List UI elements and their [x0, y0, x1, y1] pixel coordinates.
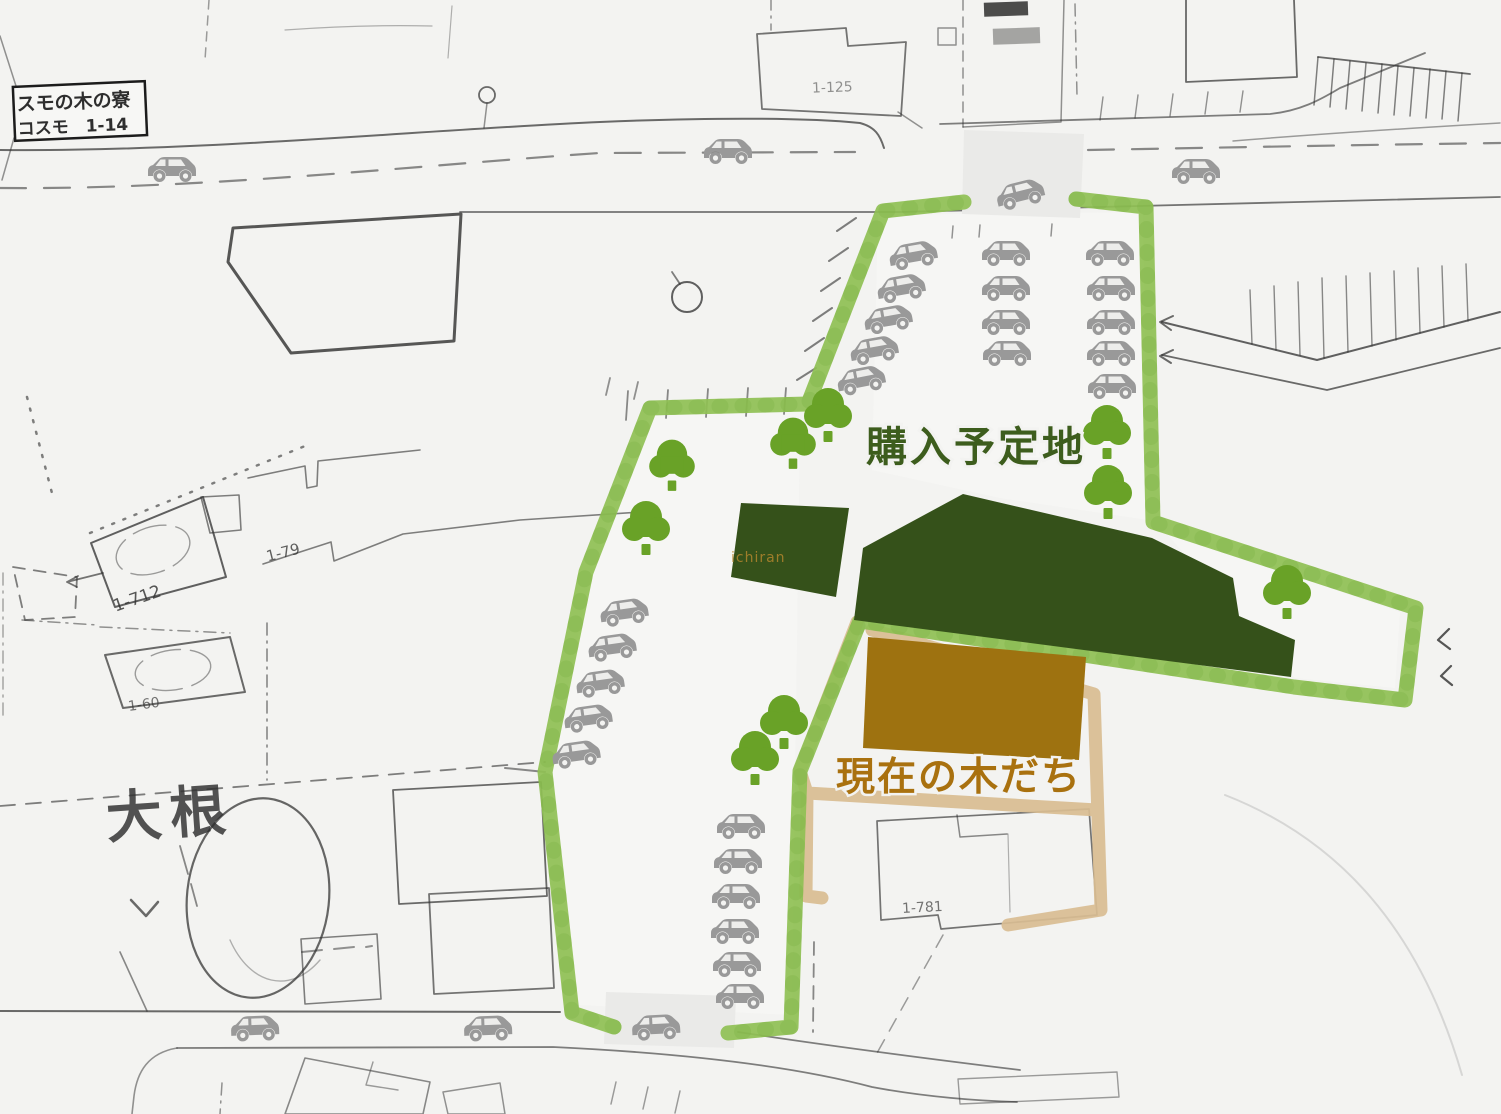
- current-grove-building-area: [863, 637, 1086, 760]
- top-entrance-road: [962, 130, 1084, 218]
- watermark-text: ichiran: [731, 550, 786, 566]
- land-purchase-plan-map: スモの木の寮 コスモ 1-14 1-125 1-79 1-712 1-60 1-…: [0, 0, 1501, 1114]
- plot-label-781: 1-781: [902, 899, 943, 917]
- plot-label-125: 1-125: [812, 79, 853, 96]
- map-canvas: スモの木の寮 コスモ 1-14 1-125 1-79 1-712 1-60 1-…: [0, 0, 1501, 1114]
- facility-label-box: スモの木の寮 コスモ 1-14: [13, 81, 147, 141]
- purchase-site-label: 購入予定地: [866, 423, 1086, 471]
- current-grove-label: 現在の木だち: [836, 755, 1082, 800]
- area-label-daikon: 大根: [104, 778, 236, 852]
